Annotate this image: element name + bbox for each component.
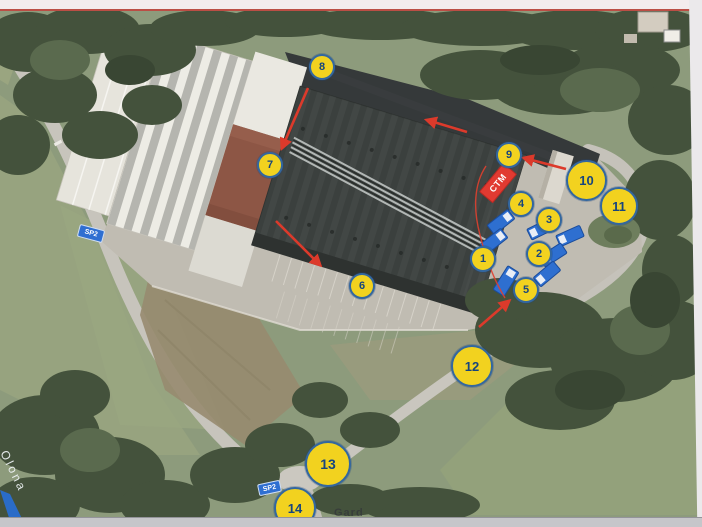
marker-1-label: 1 [480,253,486,265]
marker-3-label: 3 [546,214,552,226]
marker-7-label: 7 [267,159,273,171]
marker-4-label: 4 [518,198,524,210]
table-edge-bottom [0,517,702,527]
marker-9-label: 9 [506,149,512,161]
marker-1: 1 [470,246,496,272]
marker-14-label: 14 [288,501,302,516]
aerial-map-photo: 1 2 3 4 5 6 7 8 9 10 11 12 13 14 CTM SP2… [0,0,702,527]
marker-6-label: 6 [359,280,365,292]
marker-8: 8 [309,54,335,80]
marker-10-label: 10 [579,173,593,188]
marker-3: 3 [536,207,562,233]
road-sign-sp2-junction-text: SP2 [262,483,276,493]
marker-2: 2 [526,241,552,267]
road-sign-sp2-left-text: SP2 [84,228,99,238]
marker-5: 5 [513,277,539,303]
marker-11: 11 [600,187,638,225]
marker-12: 12 [451,345,493,387]
marker-5-label: 5 [523,284,529,296]
marker-11-label: 11 [612,199,626,214]
marker-13-label: 13 [320,456,336,472]
marker-10: 10 [566,160,607,201]
marker-6: 6 [349,273,375,299]
marker-9: 9 [496,142,522,168]
marker-12-label: 12 [465,359,479,374]
marker-7: 7 [257,152,283,178]
aerial-scene [0,0,702,527]
marker-8-label: 8 [319,61,325,73]
paper-margin-top [0,0,702,11]
marker-13: 13 [305,441,351,487]
marker-4: 4 [508,191,534,217]
marker-2-label: 2 [536,248,542,260]
